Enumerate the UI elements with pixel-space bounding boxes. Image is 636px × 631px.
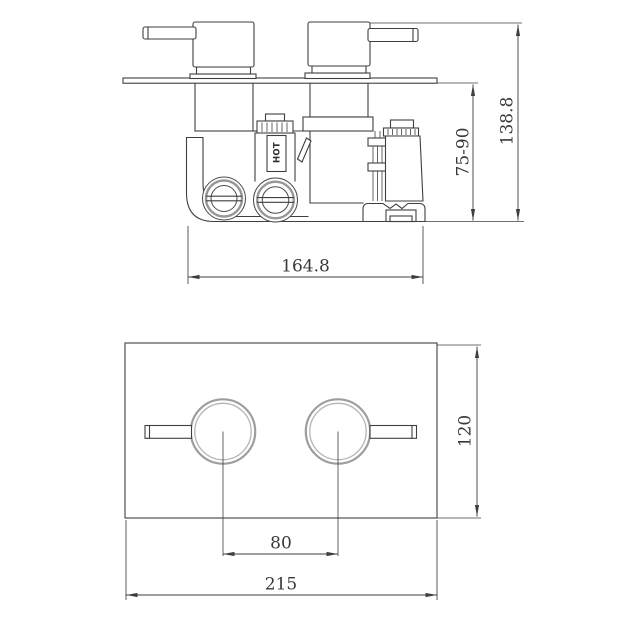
dim-plate-height-label: 120 — [456, 415, 476, 447]
right-handle-collar — [312, 66, 366, 73]
dim-overall-height: 138.8 — [425, 25, 524, 222]
dim-plate-height: 120 — [437, 345, 481, 518]
hot-cap-tab — [266, 114, 285, 121]
right-knob-lever — [370, 426, 417, 439]
diverter-fitting — [384, 120, 424, 201]
left-valve-column — [195, 83, 253, 131]
technical-drawing: HOT — [0, 0, 636, 631]
left-handle-collar — [197, 67, 251, 74]
dim-install-depth: 75-90 — [437, 83, 478, 221]
dim-plate-width: 215 — [126, 520, 437, 600]
fitting-cap-tab — [391, 120, 414, 128]
dim-plate-width-label: 215 — [265, 575, 297, 595]
foot-notch-lip — [390, 216, 412, 222]
inlet-port-right — [254, 178, 298, 222]
fitting-body — [386, 136, 424, 201]
hot-label: HOT — [273, 142, 283, 163]
right-column-flange — [303, 117, 373, 131]
dim-handle-spacing: 80 — [223, 534, 338, 555]
wall-plate-side — [123, 78, 437, 83]
dim-handle-spacing-label: 80 — [270, 534, 292, 554]
right-handle-lever — [368, 29, 418, 42]
mounting-foot — [363, 204, 425, 222]
dim-body-width: 164.8 — [188, 226, 423, 284]
technical-drawing-canvas: HOT — [0, 0, 636, 631]
left-handle-body — [193, 22, 254, 67]
left-handle-lever — [143, 27, 196, 39]
top-view: HOT — [123, 22, 524, 284]
left-knob-lever — [145, 426, 192, 439]
inlet-port-left — [203, 177, 246, 220]
left-handle-flange — [190, 74, 256, 79]
fitting-cap-collar — [384, 128, 419, 136]
front-view: 80 215 120 — [125, 343, 481, 600]
right-valve-column — [310, 83, 368, 117]
dim-install-depth-label: 75-90 — [454, 127, 474, 176]
side-clip — [298, 138, 312, 162]
right-handle-body — [308, 22, 370, 66]
stem-collar-lower — [368, 163, 387, 171]
dim-overall-height-label: 138.8 — [498, 97, 518, 146]
right-handle-flange — [305, 73, 370, 79]
right-handle-side — [305, 22, 418, 79]
stem-collar-upper — [368, 138, 387, 146]
left-handle-side — [143, 22, 256, 79]
dim-body-width-label: 164.8 — [281, 257, 330, 277]
outlet-stem — [368, 131, 387, 201]
